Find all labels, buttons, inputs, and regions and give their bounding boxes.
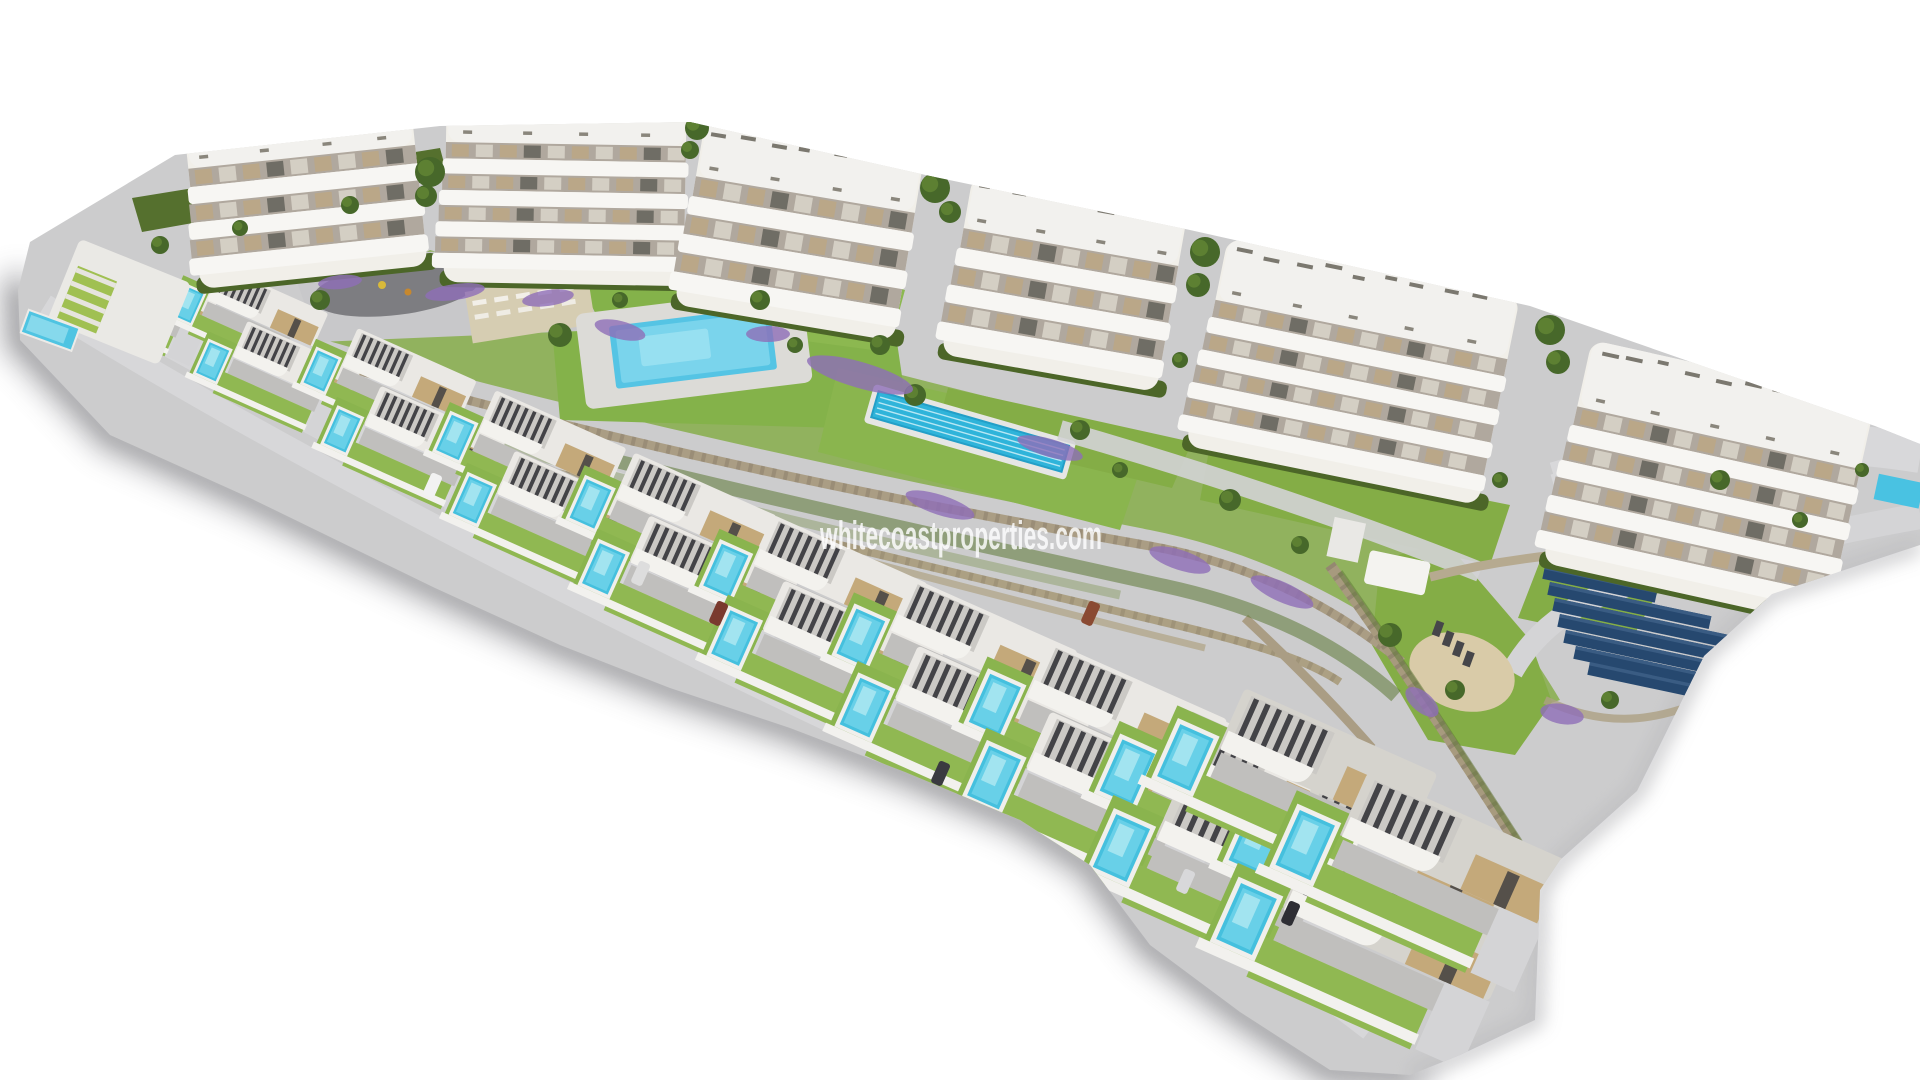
svg-text:whitecoastproperties.com: whitecoastproperties.com <box>819 514 1102 558</box>
